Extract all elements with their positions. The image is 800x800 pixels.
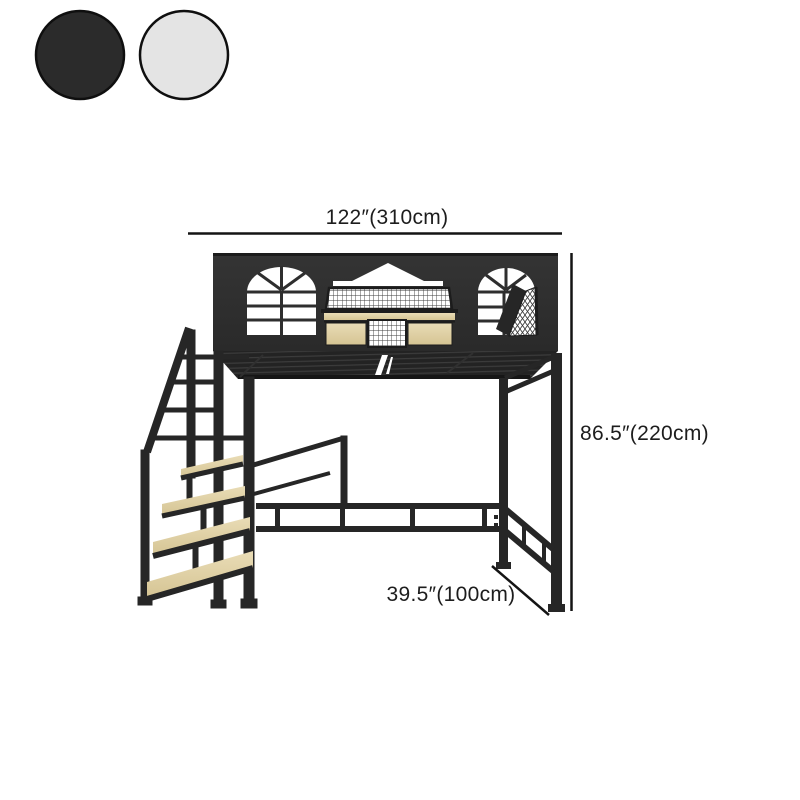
color-swatch-group [36, 11, 228, 99]
width-dimension-label: 122″(310cm) [326, 206, 449, 229]
rear-right-leg [499, 378, 508, 564]
cabinet-center-mesh-panel [368, 320, 406, 347]
height-dimension-label: 86.5″(220cm) [580, 422, 709, 445]
right-frame [494, 353, 565, 612]
rear-right-foot [496, 562, 511, 569]
front-right-foot [548, 604, 565, 612]
stair-outer-post [141, 450, 149, 600]
cabinet-right-wood-panel [408, 323, 452, 345]
left-arched-window [247, 266, 316, 335]
color-swatch-light-gray[interactable] [140, 11, 228, 99]
stair-upper-post [187, 330, 195, 478]
product-dimension-diagram: 122″(310cm) 86.5″(220cm) 39.5″(100cm) [0, 0, 800, 800]
house-facade-panel [213, 253, 558, 351]
stair-sloped-handrail [147, 328, 189, 452]
depth-dimension-label: 39.5″(100cm) [387, 583, 516, 606]
cabinet-left-wood-panel [326, 323, 366, 345]
loft-bed-illustration: 122″(310cm) 86.5″(220cm) 39.5″(100cm) [138, 206, 709, 615]
front-lower-rail [256, 503, 503, 532]
right-side-rail [503, 507, 553, 571]
stair-wooden-treads [147, 455, 253, 599]
facade-top-edge [213, 253, 558, 256]
cabinet-row [326, 320, 452, 347]
right-arched-window [478, 268, 537, 336]
color-swatch-black[interactable] [36, 11, 124, 99]
mesh-headboard-panel [326, 288, 452, 309]
